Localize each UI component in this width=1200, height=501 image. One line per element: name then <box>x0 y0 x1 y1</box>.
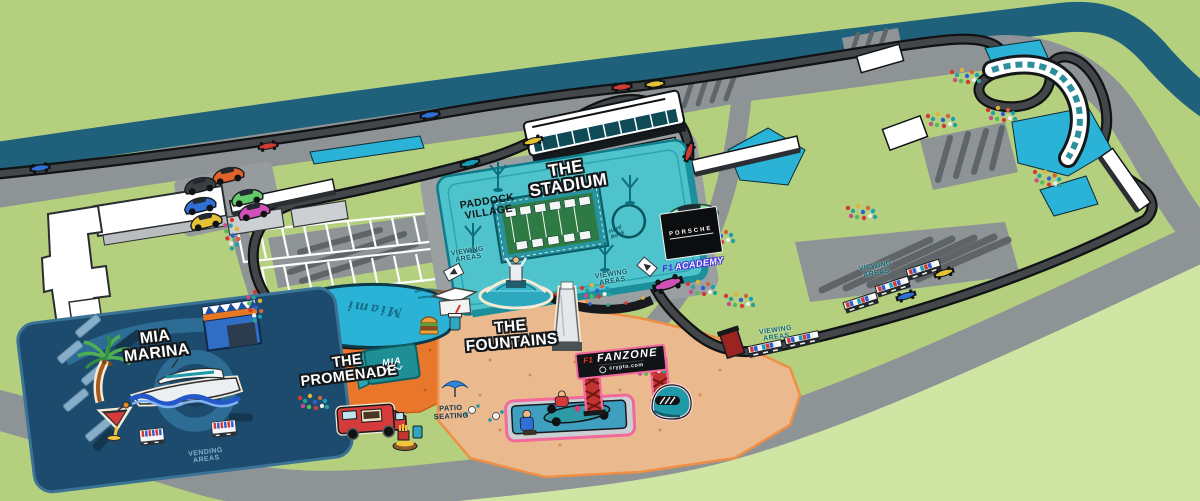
miami-circuit-map: THE STADIUM PADDOCK VILLAGE MIA MARINA T… <box>0 0 1200 501</box>
racing-helmet-icon <box>652 385 691 419</box>
map-artwork <box>0 0 1200 501</box>
vending-stand <box>211 420 236 438</box>
vending-stand <box>139 428 164 446</box>
